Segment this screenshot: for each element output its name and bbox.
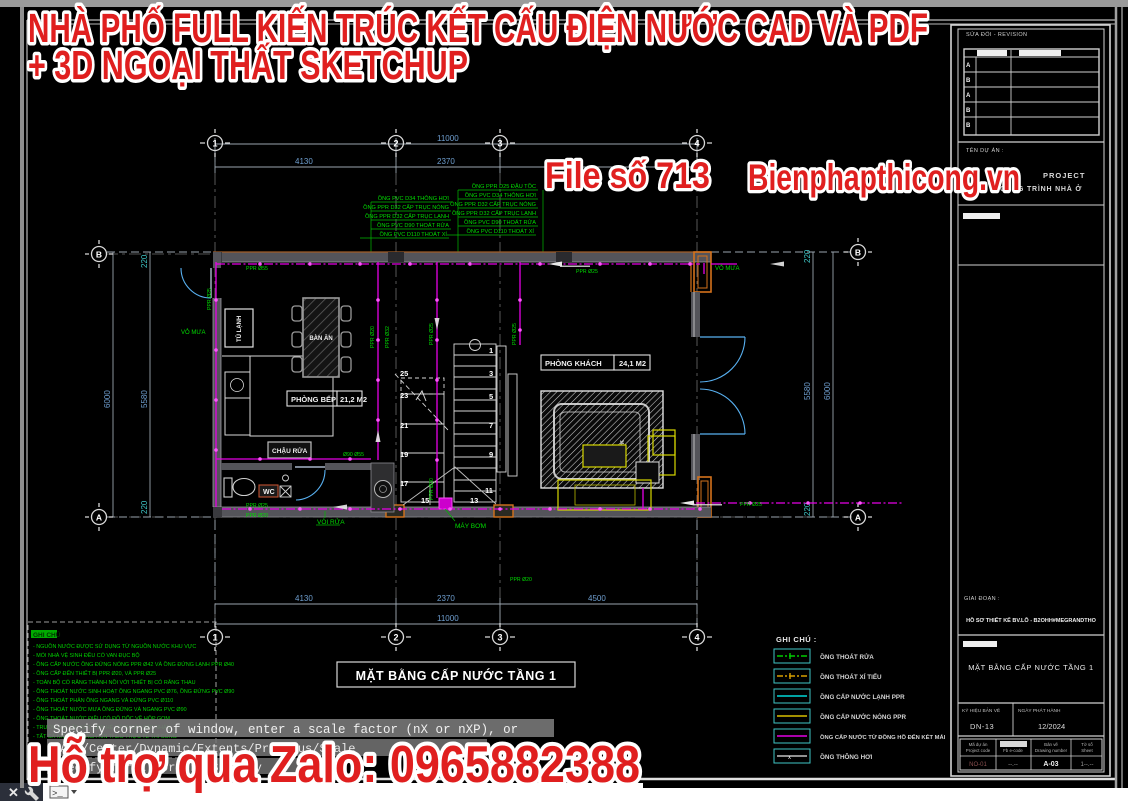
svg-text:4: 4 [694,139,699,149]
svg-text:PHÒNG KHÁCH: PHÒNG KHÁCH [545,359,602,368]
svg-text:PPR Ø20: PPR Ø20 [429,478,435,500]
svg-text:A-03: A-03 [1043,761,1058,768]
svg-text:MẶT BẰNG CẤP NƯỚC TẦNG 1: MẶT BẰNG CẤP NƯỚC TẦNG 1 [968,662,1094,672]
svg-text:--.--: --.-- [1008,762,1018,768]
svg-text:A: A [96,513,102,523]
svg-text:ỒNG PVC D90 THOÁT RỬA: ỒNG PVC D90 THOÁT RỬA [377,222,449,229]
svg-text:4500: 4500 [588,594,606,603]
svg-text:2: 2 [393,633,398,643]
svg-text:+ 3D NGOẠI THẤT SKETCHUP: + 3D NGOẠI THẤT SKETCHUP [28,42,468,88]
svg-text:2: 2 [393,139,398,149]
svg-text:- MỔI NHÀ VỆ SINH ĐỀU CÓ VAN: - MỔI NHÀ VỆ SINH ĐỀU CÓ VAN ĐỤC BỘ [33,651,140,659]
svg-text:Fb e-code: Fb e-code [1003,748,1023,753]
svg-text:ỒNG CẤP NƯỚC TỪ ĐỒNG HỒ ĐẾN KÉ: ỒNG CẤP NƯỚC TỪ ĐỒNG HỒ ĐẾN KÉT MÁI [820,733,946,741]
svg-text:2370: 2370 [437,594,455,603]
svg-text:Bản vẽ: Bản vẽ [1044,742,1058,747]
svg-text:- ỒNG THOÁT PHÂN ỒNG NGANG VÀ: - ỒNG THOÁT PHÂN ỒNG NGANG VÀ ĐỨNG PVC Ø… [33,697,173,704]
svg-text:Bienphapthicong.vn: Bienphapthicong.vn [748,157,1020,198]
svg-text:GHI CHÚ :: GHI CHÚ : [776,635,817,644]
svg-text:PPR Ø55: PPR Ø55 [246,266,268,272]
svg-text:MẶT BẰNG CẤP NƯỚC TẦNG 1: MẶT BẰNG CẤP NƯỚC TẦNG 1 [356,668,557,683]
svg-text:VỎ MƯA: VỎ MƯA [715,265,739,272]
svg-text:4130: 4130 [295,157,313,166]
svg-text:3: 3 [489,369,493,378]
svg-text:HỒ SƠ THIẾT KẾ BV.LÔ - B2OHH#M: HỒ SƠ THIẾT KẾ BV.LÔ - B2OHH#MEGRANDTHO [966,616,1096,624]
svg-text:ỒNG PVC D110 THOÁT XÍ: ỒNG PVC D110 THOÁT XÍ [467,228,535,235]
svg-text:12/2024: 12/2024 [1038,722,1065,731]
svg-text:5: 5 [489,392,493,401]
svg-text:A: A [966,93,971,99]
svg-text:6000: 6000 [103,390,112,408]
svg-text:1: 1 [489,346,493,355]
svg-text:21,2 M2: 21,2 M2 [340,395,367,404]
svg-text:PPR Ø20: PPR Ø20 [370,326,376,348]
svg-text:220: 220 [803,249,812,263]
svg-text:✕: ✕ [8,785,19,800]
svg-text:PROJECT: PROJECT [1043,171,1085,180]
svg-text:NGÀY PHÁT HÀNH: NGÀY PHÁT HÀNH [1018,707,1061,714]
svg-text:220: 220 [140,254,149,268]
svg-text:B: B [855,248,861,258]
svg-text:Specify corner of window, ente: Specify corner of window, enter a scale … [53,723,518,737]
svg-text:GIAI ĐOẠN :: GIAI ĐOẠN : [964,596,1000,602]
svg-text:BÀN ĂN: BÀN ĂN [309,335,332,342]
svg-text:4130: 4130 [295,594,313,603]
svg-text:Sheet: Sheet [1081,748,1093,753]
svg-text:ỒNG PVC D34 THÔNG HƠI: ỒNG PVC D34 THÔNG HƠI [465,192,537,199]
svg-text:Tờ số: Tờ số [1081,742,1093,747]
svg-text:WC: WC [263,489,275,496]
svg-text:Ø90 Ø55: Ø90 Ø55 [343,452,364,458]
svg-text:ỒNG PPR D32 CẤP TRỤC NÓNG: ỒNG PPR D32 CẤP TRỤC NÓNG [363,204,449,211]
svg-text:A: A [855,513,861,523]
svg-text:19: 19 [400,450,408,459]
svg-text:ỒNG PPR D32 CẤP TRỤC NÓNG: ỒNG PPR D32 CẤP TRỤC NÓNG [450,201,536,208]
svg-text:MÁY BƠM: MÁY BƠM [455,521,486,530]
svg-text:File số 713: File số 713 [545,155,710,196]
svg-text:- NGUỒN NƯỚC ĐƯỢC SỬ DỤNG TỪ: - NGUỒN NƯỚC ĐƯỢC SỬ DỤNG TỪ NGUỒN NƯỚC … [33,643,196,650]
svg-text:Project code: Project code [966,748,991,753]
svg-text:1: 1 [212,633,217,643]
svg-text:11: 11 [485,486,493,495]
svg-text:PPR Ø25: PPR Ø25 [207,288,213,310]
svg-text:3: 3 [497,139,502,149]
svg-text:PPR Ø20: PPR Ø20 [510,577,532,583]
svg-text:7: 7 [489,421,493,430]
svg-text:23: 23 [400,391,408,400]
svg-text:ỒNG PVC D34 THÔNG HƠI: ỒNG PVC D34 THÔNG HƠI [378,195,450,202]
svg-text:Hỗ trợ qua Zalo: 0965882388: Hỗ trợ qua Zalo: 0965882388 [28,736,640,794]
svg-text:CHẬU RỬA: CHẬU RỬA [272,446,308,455]
svg-text:2370: 2370 [437,157,455,166]
svg-text:13: 13 [470,496,478,505]
svg-text:1: 1 [212,139,217,149]
svg-text:PPR Ø25: PPR Ø25 [512,323,518,345]
svg-text:1--.--: 1--.-- [1081,762,1094,768]
svg-text:ỒNG PPR D25 ĐẬU TỒC: ỒNG PPR D25 ĐẬU TỒC [472,183,536,190]
svg-text:5580: 5580 [140,390,149,408]
svg-text:5580: 5580 [803,382,812,400]
svg-text:ỒNG PPR D32 CẤP TRỤC LẠNH: ỒNG PPR D32 CẤP TRỤC LẠNH [365,213,449,220]
svg-text:SỬA ĐỔI - REVISION: SỬA ĐỔI - REVISION [966,31,1027,38]
svg-text:PPR Ø25: PPR Ø25 [246,503,268,509]
svg-text:B: B [96,250,102,260]
svg-text:PPR Ø25: PPR Ø25 [429,323,435,345]
svg-text:- ỒNG THOÁT NƯỚC SINH HOẠT ỒN: - ỒNG THOÁT NƯỚC SINH HOẠT ỒNG NGANG PVC… [33,688,234,695]
svg-text:- ỒNG CẤP NƯỚC ỒNG ĐỨNG NÓNG: - ỒNG CẤP NƯỚC ỒNG ĐỨNG NÓNG PPR Ø42 VÀ … [33,661,234,668]
svg-text:- TOÀN BỘ CÓ RĂNG THÀNH NỒI V: - TOÀN BỘ CÓ RĂNG THÀNH NỒI VỚI THIẾT BỊ… [33,679,196,686]
svg-text:VỎ MƯA: VỎ MƯA [181,329,205,336]
svg-text:PPR Ø25: PPR Ø25 [576,269,598,275]
svg-text:25: 25 [400,369,408,378]
svg-text:PPR Ø32: PPR Ø32 [385,326,391,348]
svg-text:17: 17 [400,479,408,488]
svg-text:TÊN DỰ ÁN :: TÊN DỰ ÁN : [966,146,1004,154]
svg-text:ỒNG PVC D90 THOÁT RỬA: ỒNG PVC D90 THOÁT RỬA [464,219,536,226]
svg-text:6000: 6000 [823,382,832,400]
svg-text:ỒNG PVC D110 THOÁT XÍ: ỒNG PVC D110 THOÁT XÍ [380,231,448,238]
svg-text:PPR Ø25: PPR Ø25 [740,502,762,508]
svg-text:- ỒNG THOÁT NƯỚC MƯA ỒNG ĐỨNG: - ỒNG THOÁT NƯỚC MƯA ỒNG ĐỨNG VÀ NGANG P… [33,706,187,713]
svg-text:21: 21 [400,421,408,430]
svg-text:11000: 11000 [437,134,459,143]
svg-text:NO-01: NO-01 [969,762,987,768]
svg-text:9: 9 [489,450,493,459]
svg-text:- ỒNG CẤP ĐẾN THIẾT BỊ PPR Ø2: - ỒNG CẤP ĐẾN THIẾT BỊ PPR Ø20, VÀ PPR Ø… [33,670,156,677]
svg-text:3: 3 [497,633,502,643]
svg-text:4: 4 [694,633,699,643]
svg-text:24,1 M2: 24,1 M2 [619,359,646,368]
svg-text:B: B [966,123,971,129]
svg-text:B: B [966,108,971,114]
svg-text:GHI CHÚ: GHI CHÚ [33,630,61,639]
svg-text:x: x [788,755,791,761]
svg-text:PHÒNG BẾP: PHÒNG BẾP [291,394,336,404]
svg-text:PPR Ø20: PPR Ø20 [246,513,268,519]
svg-text:A: A [966,63,971,69]
svg-text:TỦ LẠNH: TỦ LẠNH [236,316,243,342]
svg-text:Drawing number: Drawing number [1035,748,1068,753]
svg-text:220: 220 [140,500,149,514]
svg-text:ỒNG PPR D32 CẤP TRỤC LẠNH: ỒNG PPR D32 CẤP TRỤC LẠNH [452,210,536,217]
svg-text:11000: 11000 [437,614,459,623]
svg-text:B: B [966,78,971,84]
svg-text:Mã dự án: Mã dự án [969,742,988,747]
svg-text:DN-13: DN-13 [970,722,994,731]
